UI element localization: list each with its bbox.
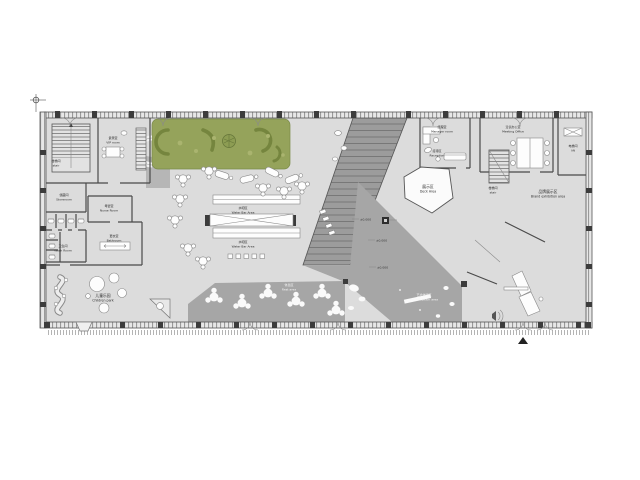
label-brand-zh: 品牌展示区 bbox=[539, 189, 558, 194]
label-manager-zh: 经理室 bbox=[437, 124, 446, 129]
label-manager-en: Manager room bbox=[431, 130, 453, 134]
label-rest-zh: 休息区 bbox=[284, 282, 293, 287]
label-lift-zh: 电梯间 bbox=[568, 143, 577, 148]
label-art-en: Art exhibition area bbox=[410, 298, 438, 302]
label-children-zh: 儿童乐园 bbox=[95, 293, 110, 298]
floor-plan-drawing: ±0.000 ±0.000 ±0.000 楼梯间 stair 贵宾室 VIP r… bbox=[0, 0, 640, 480]
label-washroom-en: Wash Room bbox=[54, 249, 72, 253]
label-water-bar-2-zh: 水吧区 bbox=[238, 239, 247, 244]
floor-plan-canvas: ±0.000 ±0.000 ±0.000 楼梯间 stair 贵宾室 VIP r… bbox=[0, 0, 640, 480]
label-water-bar-1-en: Water Bar Area bbox=[232, 211, 255, 215]
label-stair-left-en: stair bbox=[53, 164, 60, 168]
label-bathroom-en: Bathroom bbox=[107, 239, 122, 243]
tree-icon bbox=[223, 134, 236, 148]
label-nurse-zh: 母婴室 bbox=[104, 203, 113, 208]
elevation-marker: ±0.000 bbox=[360, 218, 371, 222]
label-art-zh: 艺术体验区 bbox=[416, 292, 431, 297]
label-storeroom-en: Storeroom bbox=[56, 198, 72, 202]
label-rest-en: Rest area bbox=[282, 288, 296, 292]
label-bathroom-zh: 更衣室 bbox=[109, 233, 118, 238]
label-reception-en: Reception bbox=[430, 154, 445, 158]
label-nurse-en: Nurse Room bbox=[100, 209, 118, 213]
label-vip-zh: 贵宾室 bbox=[108, 135, 117, 140]
axis-marker-icon bbox=[30, 94, 46, 112]
label-children-en: Children park bbox=[92, 299, 114, 303]
label-reception-zh: 接待区 bbox=[432, 148, 441, 153]
elevation-marker: ±0.000 bbox=[377, 266, 388, 270]
label-vip-en: VIP room bbox=[106, 141, 120, 145]
green-courtyard bbox=[139, 119, 291, 169]
label-stair-right-zh: 楼梯间 bbox=[488, 185, 497, 190]
label-storeroom-zh: 储藏间 bbox=[59, 192, 68, 197]
label-meeting-en: Meeting Office bbox=[502, 130, 524, 134]
label-stair-left-zh: 楼梯间 bbox=[51, 158, 60, 163]
label-water-bar-2-en: Water Bar Area bbox=[232, 245, 255, 249]
elevation-marker: ±0.000 bbox=[376, 239, 387, 243]
label-stair-right-en: stair bbox=[490, 191, 497, 195]
label-washroom-zh: 卫生间 bbox=[58, 243, 67, 248]
sidewalk-hatch bbox=[46, 330, 590, 335]
lift-room-furniture bbox=[564, 128, 582, 136]
stair-right bbox=[489, 150, 509, 183]
north-triangle-icon bbox=[518, 337, 528, 344]
bathroom-bench bbox=[100, 242, 130, 250]
label-water-bar-1-zh: 水吧区 bbox=[238, 205, 247, 210]
label-deck-en: Deck Area bbox=[420, 190, 436, 194]
label-deck-zh: 展示区 bbox=[422, 184, 434, 189]
label-brand-en: Brand exhibition area bbox=[531, 195, 565, 199]
label-meeting-zh: 洽谈办公室 bbox=[505, 124, 520, 129]
